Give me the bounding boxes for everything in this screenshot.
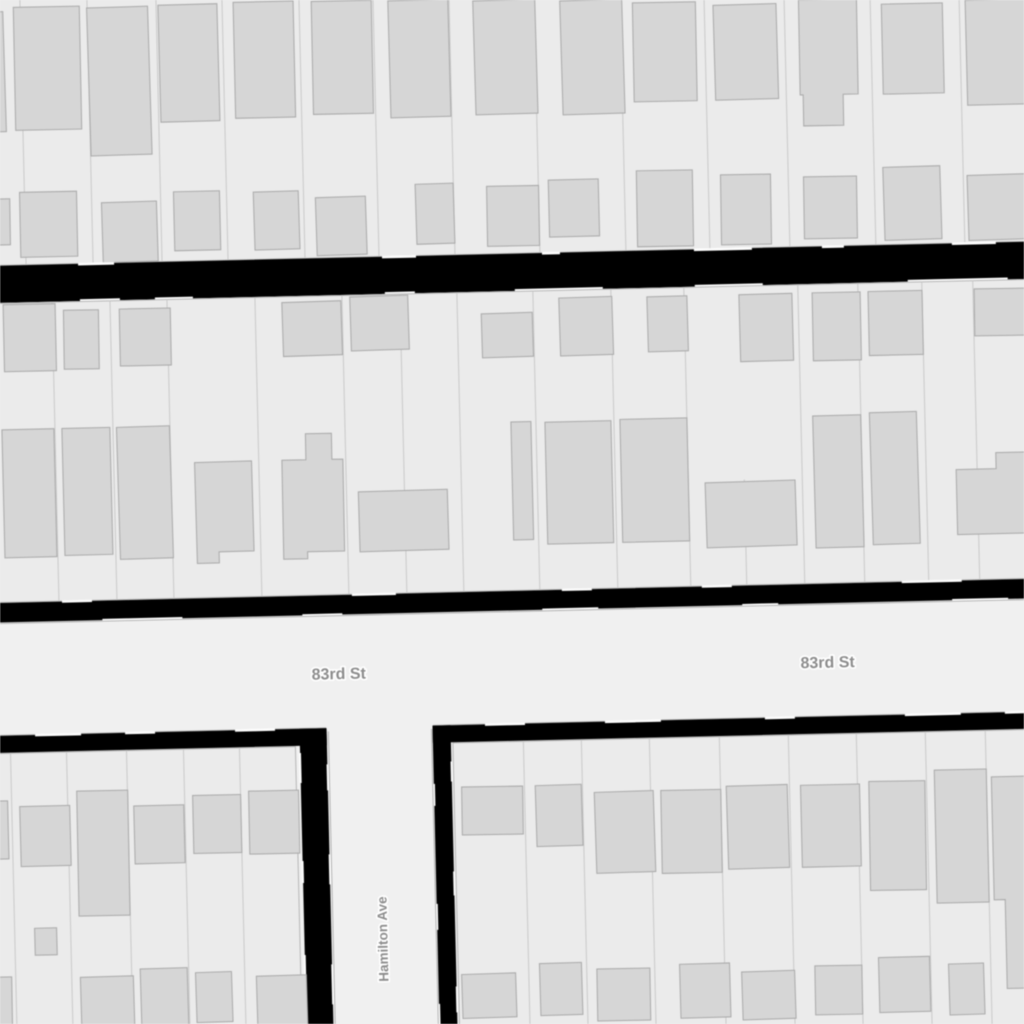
svg-text:83rd St: 83rd St (800, 654, 855, 672)
svg-text:Hamilton Ave: Hamilton Ave (374, 896, 391, 982)
svg-text:83rd St: 83rd St (311, 665, 366, 683)
